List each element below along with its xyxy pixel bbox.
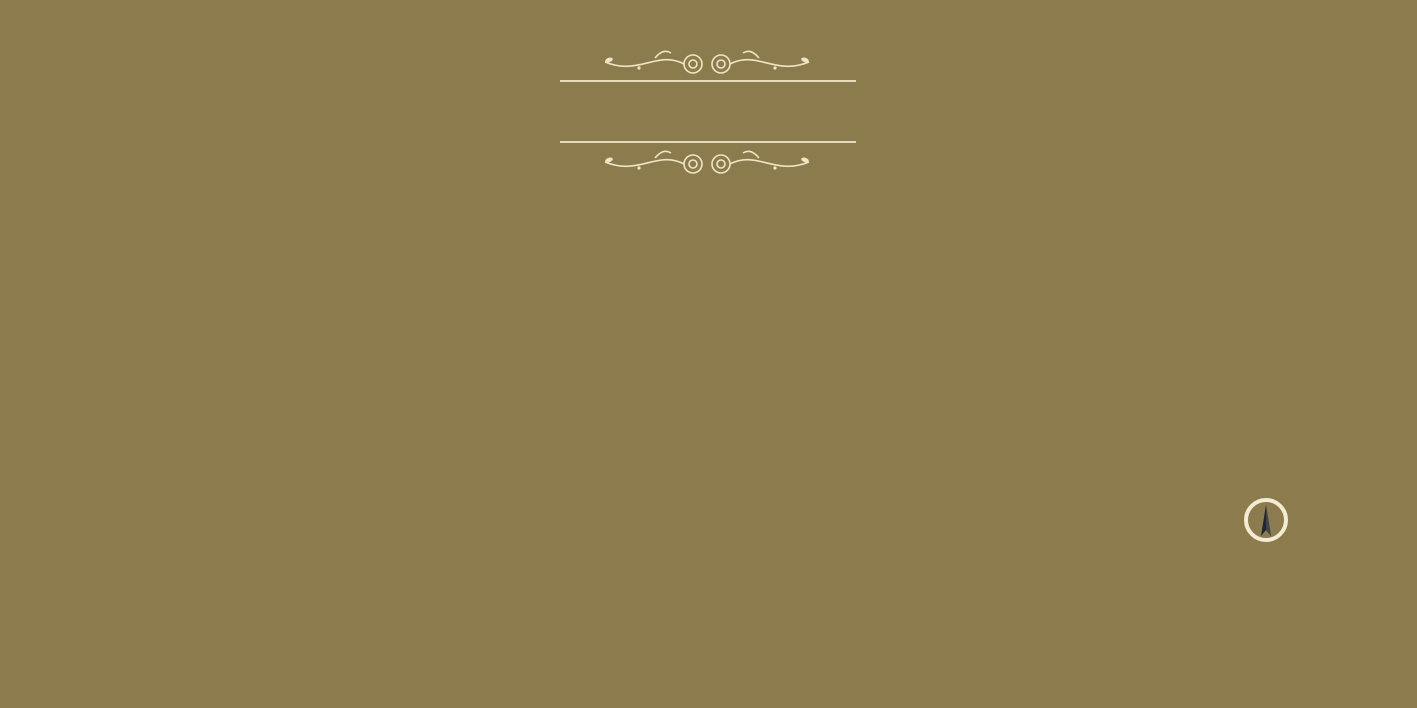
poster-page [0, 0, 1417, 708]
compass [1240, 498, 1292, 598]
compass-needle-icon [1257, 504, 1275, 538]
flourish-ornament-bottom [597, 146, 817, 182]
compass-circle [1244, 498, 1288, 542]
header-rule-bottom [560, 141, 856, 143]
flourish-ornament-top [597, 46, 817, 82]
floor-plan [0, 0, 1417, 708]
